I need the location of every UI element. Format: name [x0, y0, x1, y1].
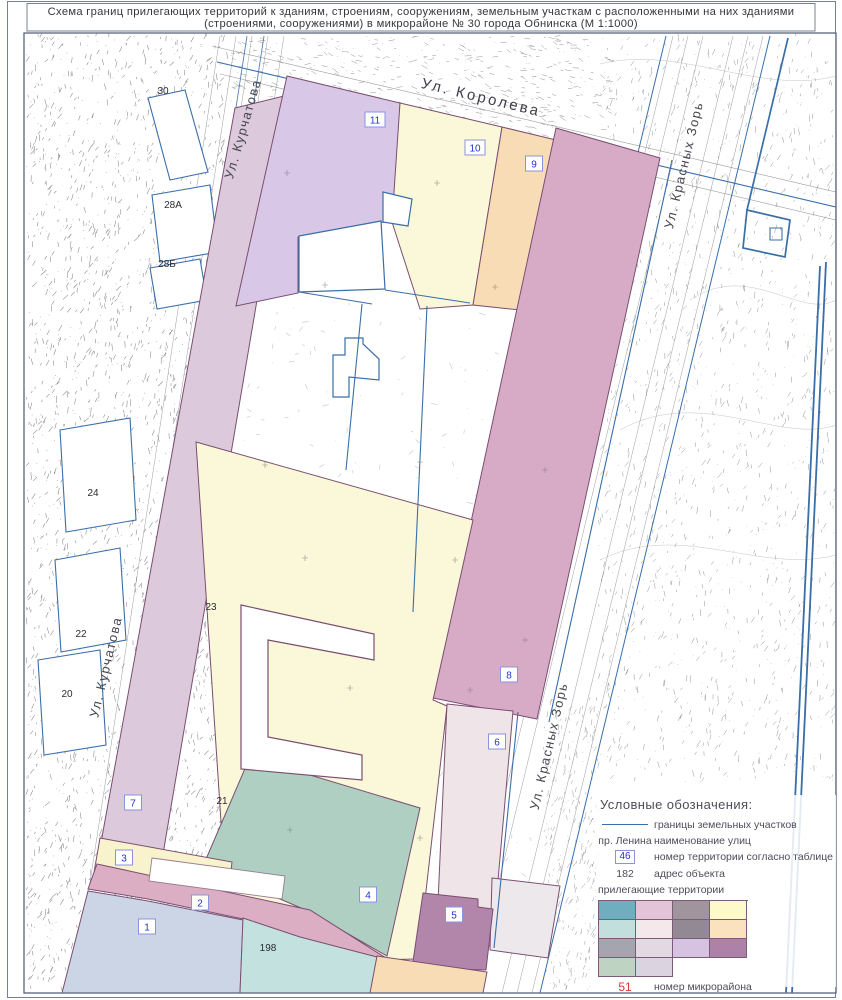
- svg-text:6: 6: [494, 738, 500, 749]
- legend: Условные обозначения: границы земельных …: [596, 795, 836, 987]
- swatch-pale-lilac: [636, 958, 673, 977]
- svg-text:8: 8: [506, 671, 512, 682]
- swatch-pale-yellow: [710, 901, 747, 920]
- legend-heading: Условные обозначения:: [600, 797, 836, 812]
- swatch-pale-pink: [636, 920, 673, 939]
- territory-label-10: 10: [465, 140, 485, 155]
- swatch-taupe: [673, 901, 710, 920]
- territory-label-8: 8: [501, 667, 518, 682]
- svg-text:1: 1: [144, 923, 150, 934]
- swatch-pink: [636, 901, 673, 920]
- address-20: 20: [61, 689, 73, 700]
- scheme-page: Схема границ прилегающих территорий к зд…: [0, 0, 842, 1000]
- svg-text:10: 10: [469, 144, 481, 155]
- svg-text:5: 5: [451, 911, 457, 922]
- address-21: 21: [216, 796, 228, 807]
- svg-text:4: 4: [365, 891, 371, 902]
- territory-label-3: 3: [116, 850, 133, 865]
- svg-text:2: 2: [197, 899, 203, 910]
- swatch-pale-green: [599, 958, 636, 977]
- swatch-teal: [599, 901, 636, 920]
- legend-item-boundaries: границы земельных участков: [596, 818, 836, 831]
- address-example: 182: [596, 868, 654, 880]
- territory-pale-block: [490, 878, 560, 958]
- territory-label-6: 6: [489, 734, 506, 749]
- street-example: пр. Ленина: [596, 835, 654, 847]
- territory-label-11: 11: [365, 112, 385, 127]
- address-28a: 28А: [164, 200, 182, 211]
- territory-label-4: 4: [360, 887, 377, 902]
- district-number-example: 51: [596, 980, 654, 994]
- svg-text:7: 7: [130, 799, 136, 810]
- address-30: 30: [157, 86, 169, 97]
- territory-label-9: 9: [526, 156, 543, 171]
- swatch-light-cyan: [599, 920, 636, 939]
- address-24: 24: [87, 488, 99, 499]
- swatch-pale-lavender: [636, 939, 673, 958]
- legend-item-address: 182 адрес объекта: [596, 867, 836, 880]
- territory-label-1: 1: [139, 919, 156, 934]
- page-title-line2: (строениями, сооружениями) в микрорайоне…: [204, 18, 638, 30]
- territory-number-example: 46: [615, 850, 634, 864]
- territory-label-2: 2: [192, 895, 209, 910]
- address-22: 22: [75, 629, 87, 640]
- swatch-gray-blue: [599, 939, 636, 958]
- svg-text:11: 11: [370, 116, 381, 127]
- territory-label-7: 7: [125, 795, 142, 810]
- address-198: 198: [260, 943, 277, 954]
- legend-item-territory-number: 46 номер территории согласно таблице: [596, 850, 836, 864]
- page-title-line1: Схема границ прилегающих территорий к зд…: [48, 6, 795, 18]
- swatch-light-purple: [673, 939, 710, 958]
- address-28b: 28Б: [158, 259, 176, 270]
- svg-text:3: 3: [121, 854, 127, 865]
- legend-adjacent-label: прилегающие территории: [598, 884, 836, 896]
- swatch-mauve-gray: [673, 920, 710, 939]
- adjacent-territories-swatch-grid: [598, 900, 748, 977]
- legend-item-street-name: пр. Ленина наименование улиц: [596, 834, 836, 847]
- address-23: 23: [205, 602, 217, 613]
- swatch-dark-mauve: [710, 939, 747, 958]
- svg-text:9: 9: [531, 160, 537, 171]
- territory-label-5: 5: [446, 907, 463, 922]
- legend-item-district-number: 51 номер микрорайона: [596, 980, 836, 994]
- swatch-pale-orange: [710, 920, 747, 939]
- boundary-line-swatch: [602, 824, 648, 825]
